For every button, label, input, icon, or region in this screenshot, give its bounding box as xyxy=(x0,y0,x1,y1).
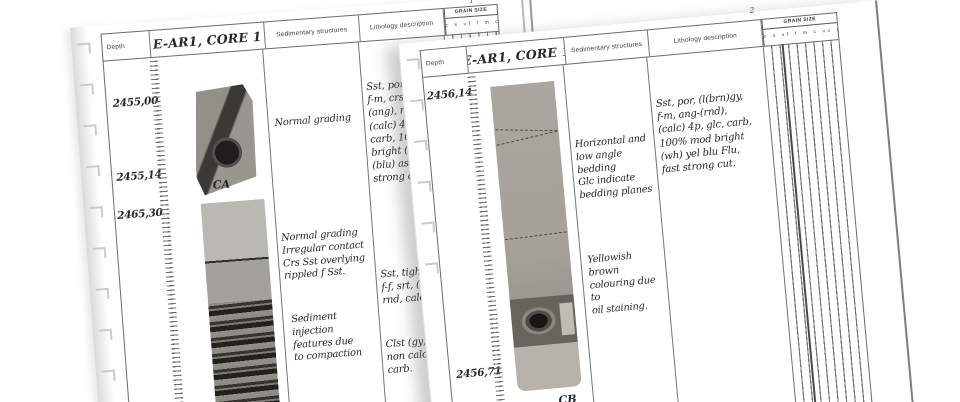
binding-mark xyxy=(410,99,424,111)
binding-mark xyxy=(425,262,439,274)
core-photo-laminations xyxy=(208,299,294,402)
core-strip-bottom xyxy=(514,342,582,392)
log-form: Depth E-AR1, CORE 1 Sedimentary structur… xyxy=(420,12,885,402)
sed-note: Normal grading xyxy=(274,112,351,130)
core-log-sheet-2: 2 Depth E-AR1, CORE 1 Sedimentary struct… xyxy=(398,0,926,402)
binding-mark xyxy=(418,181,432,193)
core-plug-hole xyxy=(520,306,556,336)
binding-mark xyxy=(421,221,435,233)
core-crack xyxy=(492,130,562,147)
binding-mark xyxy=(99,329,113,341)
core-photo-sandstone xyxy=(200,199,271,304)
binding-mark xyxy=(83,124,97,136)
core-title: E-AR1, CORE 1 xyxy=(467,43,567,68)
binding-mark xyxy=(93,247,107,259)
binding-mark xyxy=(102,370,116,382)
sed-note: Yellowish brown colouring due to oil sta… xyxy=(587,248,670,319)
page-number: 2 xyxy=(749,6,755,15)
core-piece-label: CB xyxy=(558,392,577,402)
lithology-note: Sst, por, (l(brn)gy, f-m, ang-(rnd), (ca… xyxy=(655,89,756,176)
sed-note: Horizontal and low angle bedding Glc ind… xyxy=(574,132,659,203)
grain-size-box: GRAIN SIZE c s vf f m c vc g xyxy=(444,5,499,35)
binding-mark xyxy=(77,43,91,55)
sed-note: Normal grading Irregular contact Crs Sst… xyxy=(281,227,367,284)
binding-mark xyxy=(414,140,428,152)
core-photo-strip xyxy=(490,81,581,392)
depth-header: Depth xyxy=(102,31,152,61)
core-piece-label: CA xyxy=(212,177,230,191)
core-crack xyxy=(500,231,572,241)
binding-mark xyxy=(89,206,103,218)
core-plug-notch xyxy=(559,302,575,335)
depth-value: 2465,30 xyxy=(117,207,163,222)
page-number: 1 xyxy=(469,0,475,5)
sed-note: Sediment injection features due to compa… xyxy=(291,308,382,366)
form-body: 2456,14 2456,71 xyxy=(423,39,884,402)
core-plug-band xyxy=(509,294,577,348)
core-title: E-AR1, CORE 1 xyxy=(152,28,262,51)
binding-mark xyxy=(96,288,110,300)
binding-mark xyxy=(80,83,94,95)
binding-mark xyxy=(406,58,420,70)
binding-mark xyxy=(86,165,100,177)
scanned-core-log-composite: 1 Depth E-AR1, CORE 1 Sedimentary struct… xyxy=(0,0,960,402)
